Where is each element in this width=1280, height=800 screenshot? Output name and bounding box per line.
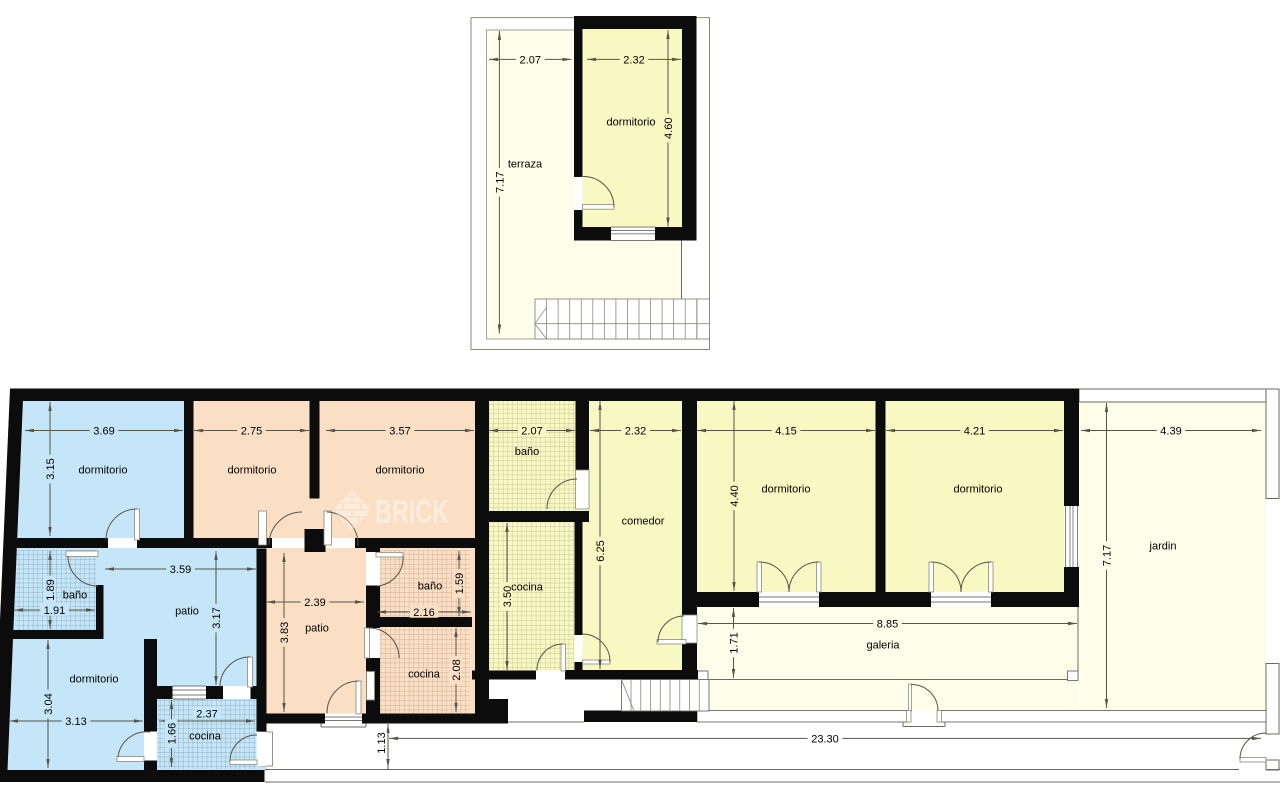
- svg-text:2.37: 2.37: [196, 708, 217, 720]
- svg-text:dormitorio: dormitorio: [228, 465, 277, 477]
- svg-text:dormitorio: dormitorio: [79, 465, 128, 477]
- svg-text:2.08: 2.08: [451, 659, 463, 680]
- svg-text:2.39: 2.39: [304, 597, 325, 609]
- svg-text:2.75: 2.75: [241, 425, 262, 437]
- svg-text:jardin: jardin: [1149, 541, 1177, 553]
- svg-text:terraza: terraza: [508, 159, 543, 171]
- svg-text:baño: baño: [63, 590, 87, 602]
- svg-text:dormitorio: dormitorio: [607, 117, 656, 129]
- svg-text:1.91: 1.91: [44, 605, 65, 617]
- svg-text:cocina: cocina: [189, 731, 222, 743]
- svg-text:7.17: 7.17: [1101, 545, 1113, 566]
- svg-text:4.15: 4.15: [775, 425, 796, 437]
- svg-text:dormitorio: dormitorio: [70, 674, 119, 686]
- svg-text:2.16: 2.16: [413, 607, 434, 619]
- svg-text:dormitorio: dormitorio: [954, 484, 1003, 496]
- svg-text:patio: patio: [175, 606, 199, 618]
- svg-text:3.83: 3.83: [279, 622, 291, 643]
- svg-text:4.39: 4.39: [1160, 425, 1181, 437]
- svg-text:7.17: 7.17: [494, 172, 506, 193]
- svg-text:4.60: 4.60: [663, 118, 675, 139]
- svg-text:6.25: 6.25: [595, 540, 607, 561]
- svg-text:3.17: 3.17: [211, 607, 223, 628]
- svg-text:1.66: 1.66: [166, 723, 178, 744]
- svg-text:1.13: 1.13: [376, 732, 388, 753]
- svg-text:galeria: galeria: [866, 640, 900, 652]
- svg-text:3.04: 3.04: [43, 693, 55, 714]
- svg-text:1.59: 1.59: [454, 573, 466, 594]
- svg-text:4.21: 4.21: [964, 425, 985, 437]
- svg-text:baño: baño: [418, 581, 442, 593]
- svg-text:23.30: 23.30: [811, 733, 839, 745]
- svg-text:3.59: 3.59: [170, 564, 191, 576]
- svg-text:cocina: cocina: [408, 669, 441, 681]
- svg-text:3.15: 3.15: [45, 458, 57, 479]
- svg-text:2.07: 2.07: [520, 54, 541, 66]
- svg-text:BRICK: BRICK: [375, 493, 449, 530]
- svg-text:cocina: cocina: [511, 582, 544, 594]
- svg-text:8.85: 8.85: [877, 618, 898, 630]
- svg-text:3.69: 3.69: [93, 425, 114, 437]
- svg-text:dormitorio: dormitorio: [762, 484, 811, 496]
- svg-text:comedor: comedor: [622, 516, 665, 528]
- svg-text:3.57: 3.57: [389, 425, 410, 437]
- svg-text:1.71: 1.71: [728, 632, 740, 653]
- svg-text:patio: patio: [305, 623, 329, 635]
- svg-text:2.32: 2.32: [625, 425, 646, 437]
- svg-text:2.32: 2.32: [623, 54, 644, 66]
- svg-text:dormitorio: dormitorio: [376, 465, 425, 477]
- svg-text:2.07: 2.07: [521, 425, 542, 437]
- svg-text:4.40: 4.40: [729, 485, 741, 506]
- svg-text:baño: baño: [515, 446, 539, 458]
- svg-text:1.89: 1.89: [45, 579, 57, 600]
- svg-text:3.13: 3.13: [65, 716, 86, 728]
